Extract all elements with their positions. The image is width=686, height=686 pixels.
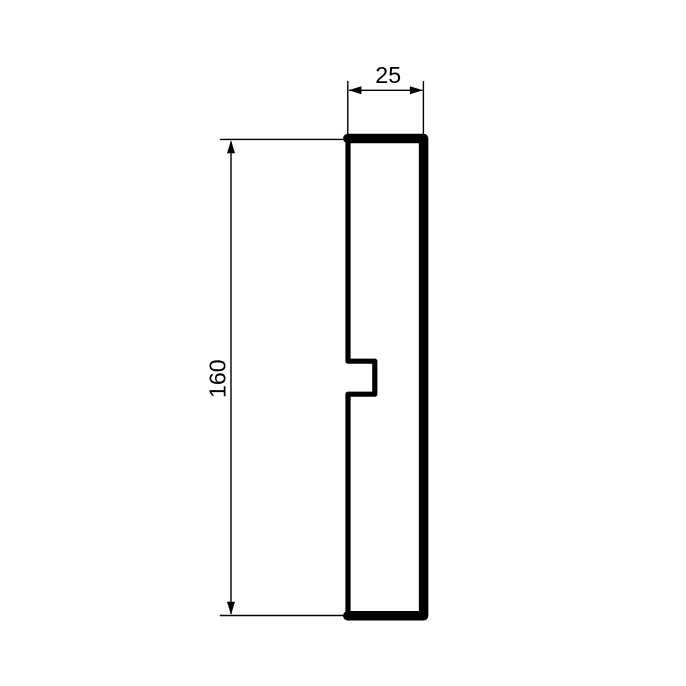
svg-text:160: 160 [205,359,231,398]
svg-text:25: 25 [375,62,401,88]
